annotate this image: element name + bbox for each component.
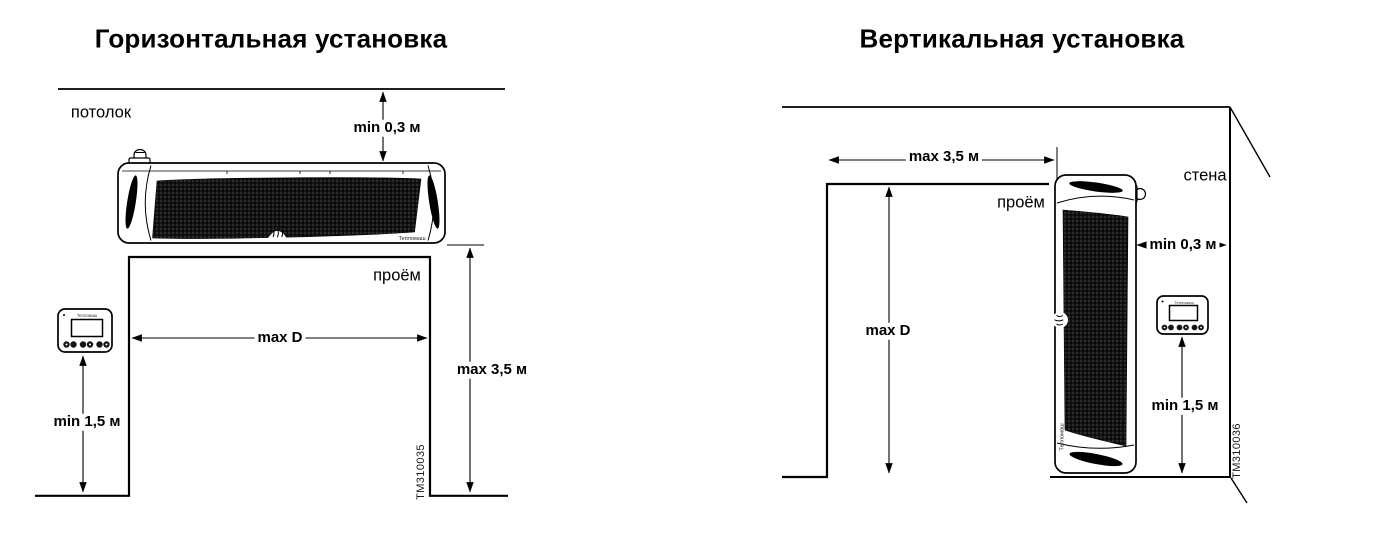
wall-clearance-dim-label: min 0,3 м [1147,237,1220,254]
controller-height-dim-label-right: min 1,5 м [1149,398,1222,415]
controller-right: Тепломаш [1157,296,1208,334]
device-brand-label: Тепломаш [398,236,426,242]
air-grille [1063,210,1128,446]
left-diagram: Тепломаш Тепломаш [35,89,508,496]
opening-height-dim-label-left: max 3,5 м [454,362,530,379]
controller-brand-label: Тепломаш [1174,300,1193,305]
controller-height-dim-label-left: min 1,5 м [51,414,124,431]
opening-label-right: проём [997,194,1045,213]
controller-left: Тепломаш [58,309,112,352]
diagram-linework: Тепломаш Тепломаш [0,0,1380,537]
opening-label-left: проём [373,267,421,286]
doorway-opening-outline [782,184,1049,477]
air-curtain-vertical: Тепломаш [1052,175,1146,473]
doorway-opening-outline [35,257,508,496]
ceiling-label: потолок [71,104,131,123]
wall-label: стена [1183,167,1226,186]
drawing-number-left: TM310035 [415,444,427,500]
air-grille [153,178,422,239]
opening-height-dim-label-right: max D [862,323,913,340]
right-diagram-title: Вертикальная установка [860,24,1185,55]
wall-corner-diagonal-bottom [1231,478,1247,503]
opening-width-dim-label-left: max D [254,330,305,347]
wall-corner-diagonal-top [1230,107,1270,177]
left-diagram-title: Горизонтальная установка [95,24,448,55]
drawing-number-right: TM310036 [1231,423,1243,479]
device-brand-label: Тепломаш [1060,423,1066,451]
opening-width-dim-label-right: max 3,5 м [906,149,982,166]
air-curtain-horizontal: Тепломаш [118,150,445,243]
cable-gland [129,150,150,164]
ceiling-clearance-dim-label: min 0,3 м [351,120,424,137]
controller-brand-label: Тепломаш [77,313,98,318]
installation-diagrams-page: Тепломаш Тепломаш [0,0,1380,537]
